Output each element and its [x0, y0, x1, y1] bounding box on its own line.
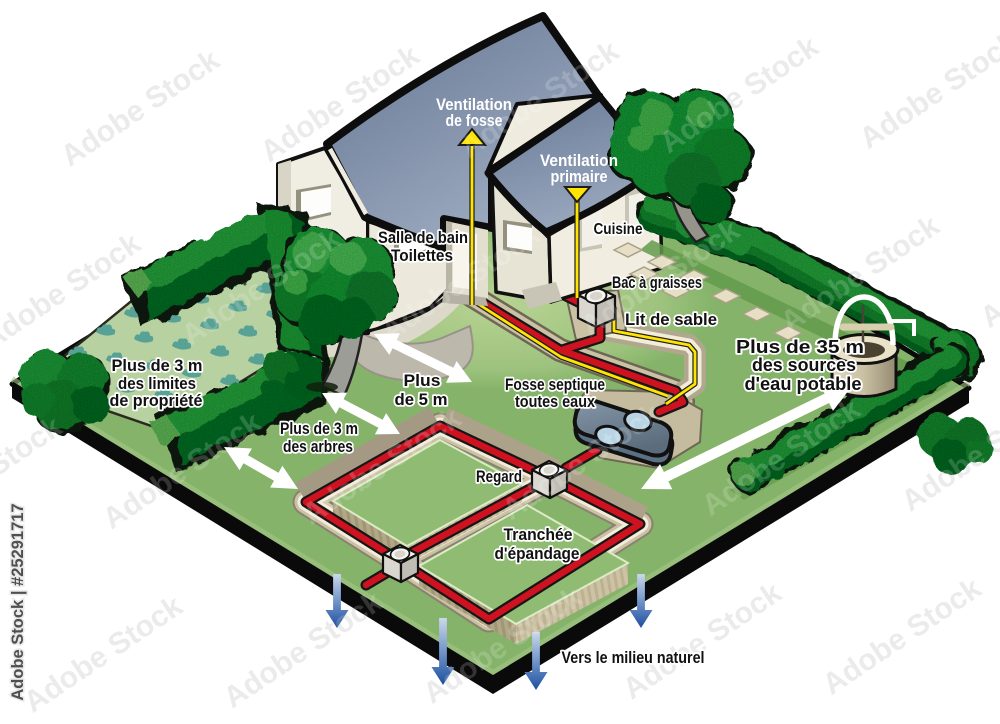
svg-text:de fosse: de fosse: [446, 111, 503, 130]
svg-text:Lit de sable: Lit de sable: [625, 310, 717, 329]
svg-text:Plus de 35 m: Plus de 35 m: [736, 337, 864, 357]
svg-text:Toilettes: Toilettes: [391, 246, 453, 265]
svg-text:des sources: des sources: [752, 355, 856, 375]
svg-text:de propriété: de propriété: [110, 391, 203, 410]
svg-text:Plus: Plus: [404, 371, 441, 390]
svg-text:des arbres: des arbres: [283, 438, 353, 456]
svg-text:d'épandage: d'épandage: [495, 544, 580, 563]
svg-text:toutes eaux: toutes eaux: [515, 392, 595, 411]
svg-text:Plus de 3 m: Plus de 3 m: [112, 356, 203, 375]
svg-text:Plus de 3 m: Plus de 3 m: [280, 420, 358, 438]
svg-text:Cuisine: Cuisine: [594, 221, 643, 238]
svg-text:Vers le milieu naturel: Vers le milieu naturel: [562, 649, 705, 667]
svg-text:d'eau potable: d'eau potable: [745, 374, 862, 394]
svg-text:Regard: Regard: [476, 468, 522, 486]
svg-text:Salle de bain: Salle de bain: [378, 228, 468, 247]
svg-text:Adobe Stock | #25291717: Adobe Stock | #25291717: [9, 503, 27, 700]
svg-text:de 5 m: de 5 m: [395, 390, 448, 409]
svg-text:primaire: primaire: [551, 167, 608, 186]
svg-text:Tranchée: Tranchée: [504, 525, 573, 544]
svg-text:Bac à graisses: Bac à graisses: [612, 273, 702, 292]
